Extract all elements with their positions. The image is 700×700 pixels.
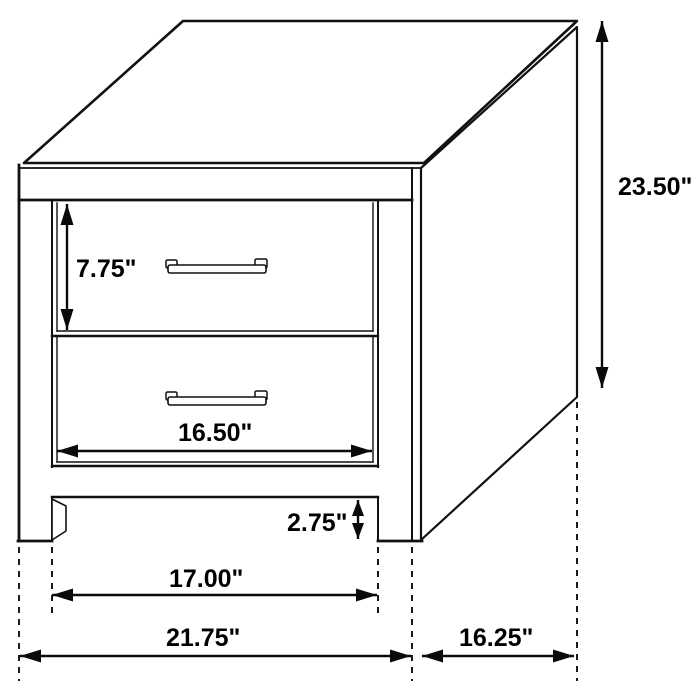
drawer2-handle-bar (168, 397, 266, 405)
dim-label-overall-height: 23.50" (618, 173, 692, 201)
arrowhead-up-icon (352, 500, 364, 516)
dim-overall-height: 23.50" (596, 21, 693, 388)
arrowhead-down-icon (352, 523, 364, 539)
dim-label-side-depth: 16.25" (459, 624, 533, 652)
arrowhead-up-icon (61, 204, 74, 225)
dim-top-drawer-height: 7.75" (61, 204, 137, 330)
arrowhead-right-icon (553, 650, 574, 663)
drawer1-handle (166, 259, 267, 273)
drawer2-handle (166, 391, 267, 405)
arrowhead-right-icon (356, 589, 377, 602)
dim-side-depth: 16.25" (422, 624, 574, 663)
dim-base-clearance: 2.75" (287, 500, 364, 539)
dim-leg-spacing: 17.00" (52, 565, 377, 602)
arrowhead-left-icon (422, 650, 443, 663)
dim-label-leg-spacing: 17.00" (169, 565, 243, 593)
dim-label-overall-width: 21.75" (166, 624, 240, 652)
dim-label-base-clearance: 2.75" (287, 509, 348, 537)
dim-drawer-width: 16.50" (57, 419, 372, 458)
nightstand-dimension-diagram: 23.50" 7.75" 16.50" 2.75" 17 (0, 0, 700, 700)
arrowhead-up-icon (596, 21, 609, 42)
drawer1-handle-bar (168, 265, 266, 273)
dim-label-drawer-width: 16.50" (178, 419, 252, 447)
arrowhead-down-icon (61, 309, 74, 330)
arrowhead-down-icon (596, 367, 609, 388)
arrowhead-right-icon (351, 445, 372, 458)
left-leg-side-face (52, 499, 66, 540)
dim-overall-width: 21.75" (20, 624, 411, 663)
dim-label-top-drawer-height: 7.75" (76, 255, 137, 283)
arrowhead-left-icon (52, 589, 73, 602)
arrowhead-right-icon (390, 650, 411, 663)
diagram-page: 23.50" 7.75" 16.50" 2.75" 17 (0, 0, 700, 700)
arrowhead-left-icon (57, 445, 78, 458)
arrowhead-left-icon (20, 650, 41, 663)
